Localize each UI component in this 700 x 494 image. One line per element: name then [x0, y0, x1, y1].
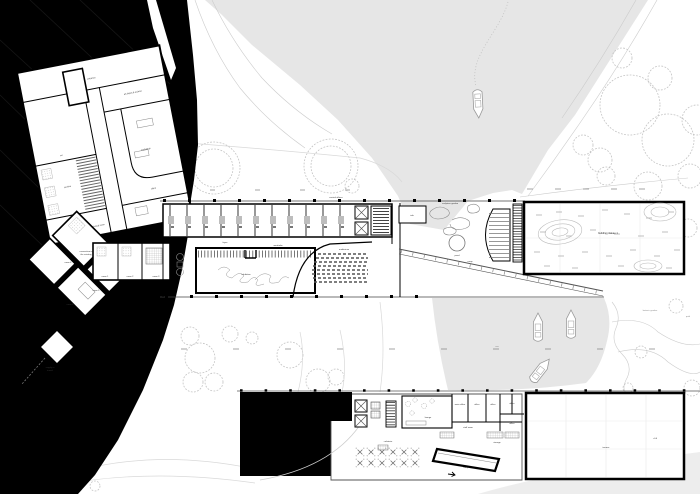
area-label: terrace	[603, 446, 611, 449]
land-label: botanic garden	[643, 309, 658, 312]
room-label: auditorium	[339, 248, 349, 251]
bottom-right-building	[526, 393, 684, 479]
room-label: room 3	[153, 275, 161, 278]
room-label: office	[490, 404, 496, 406]
room-label: staff room	[463, 426, 473, 429]
middle-water-basin: sea	[432, 298, 609, 390]
building-label: building plateau 1	[598, 232, 618, 235]
site-plan-drawing: sea botanic garden path	[0, 0, 700, 494]
room-label: supply in	[46, 367, 55, 369]
room-label: cafeteria	[384, 440, 393, 443]
right-building: building plateau 1	[524, 202, 684, 274]
ramp-label: ramp	[468, 260, 474, 263]
room-label: wardrobe	[273, 244, 283, 247]
room-label: room 4	[65, 261, 73, 264]
room-label: room 6	[67, 303, 75, 306]
room-label: the existing	[80, 253, 92, 256]
ramp-label: ramp	[464, 466, 470, 469]
room-label: office	[509, 403, 515, 405]
room-label: office	[474, 404, 480, 406]
room-label: room 1	[102, 275, 110, 278]
room-label: room 2	[127, 275, 135, 278]
room-label: foyer	[223, 241, 228, 244]
room-label: main office	[455, 404, 466, 406]
area-label: sculpture garden	[442, 202, 459, 205]
room-label: exhibition	[241, 273, 251, 276]
room-label: lounge	[425, 417, 432, 419]
room-label: office	[509, 423, 515, 425]
room-label: connection to	[79, 250, 93, 253]
room-label: tunnel	[47, 369, 53, 372]
area-label: pond	[455, 255, 461, 257]
room-label: room 5	[93, 289, 101, 292]
room-label: storage	[493, 441, 501, 444]
building-label: central offices	[329, 196, 343, 199]
